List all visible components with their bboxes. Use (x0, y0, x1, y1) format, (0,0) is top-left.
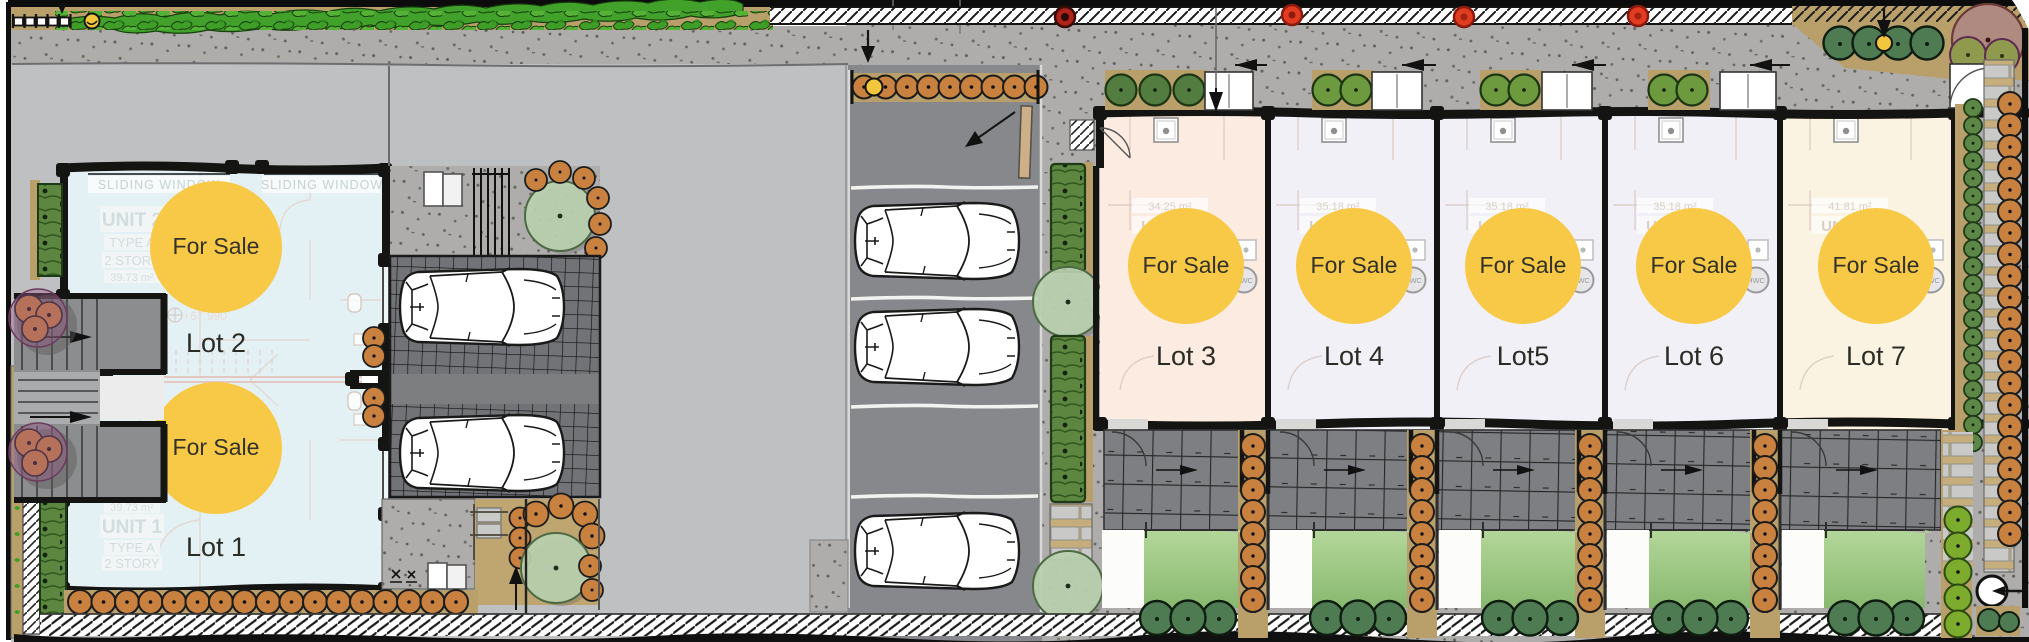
svg-text:Lot 4: Lot 4 (1324, 341, 1384, 371)
svg-text:SLIDING WINDOW: SLIDING WINDOW (261, 178, 383, 192)
svg-text:TYPE A: TYPE A (109, 540, 155, 555)
svg-text:For Sale: For Sale (173, 434, 260, 460)
svg-text:2 STORY: 2 STORY (104, 556, 159, 571)
svg-text:For Sale: For Sale (1833, 252, 1920, 278)
svg-text:UNIT 1: UNIT 1 (102, 517, 163, 538)
svg-text:For Sale: For Sale (1143, 252, 1230, 278)
svg-text:Lot5: Lot5 (1497, 341, 1550, 371)
svg-text:For Sale: For Sale (173, 233, 260, 259)
svg-text:For Sale: For Sale (1651, 252, 1738, 278)
svg-text:Lot 6: Lot 6 (1664, 341, 1724, 371)
svg-text:TYPE A: TYPE A (109, 235, 155, 250)
svg-text:For Sale: For Sale (1480, 252, 1567, 278)
svg-text:Lot 7: Lot 7 (1846, 341, 1906, 371)
svg-text:For Sale: For Sale (1311, 252, 1398, 278)
svg-text:39.73 m²: 39.73 m² (110, 272, 154, 284)
svg-text:Lot 1: Lot 1 (186, 532, 246, 562)
svg-text:Lot 3: Lot 3 (1156, 341, 1216, 371)
svg-text:Lot 2: Lot 2 (186, 328, 246, 358)
svg-text:39.73 m²: 39.73 m² (110, 502, 154, 514)
